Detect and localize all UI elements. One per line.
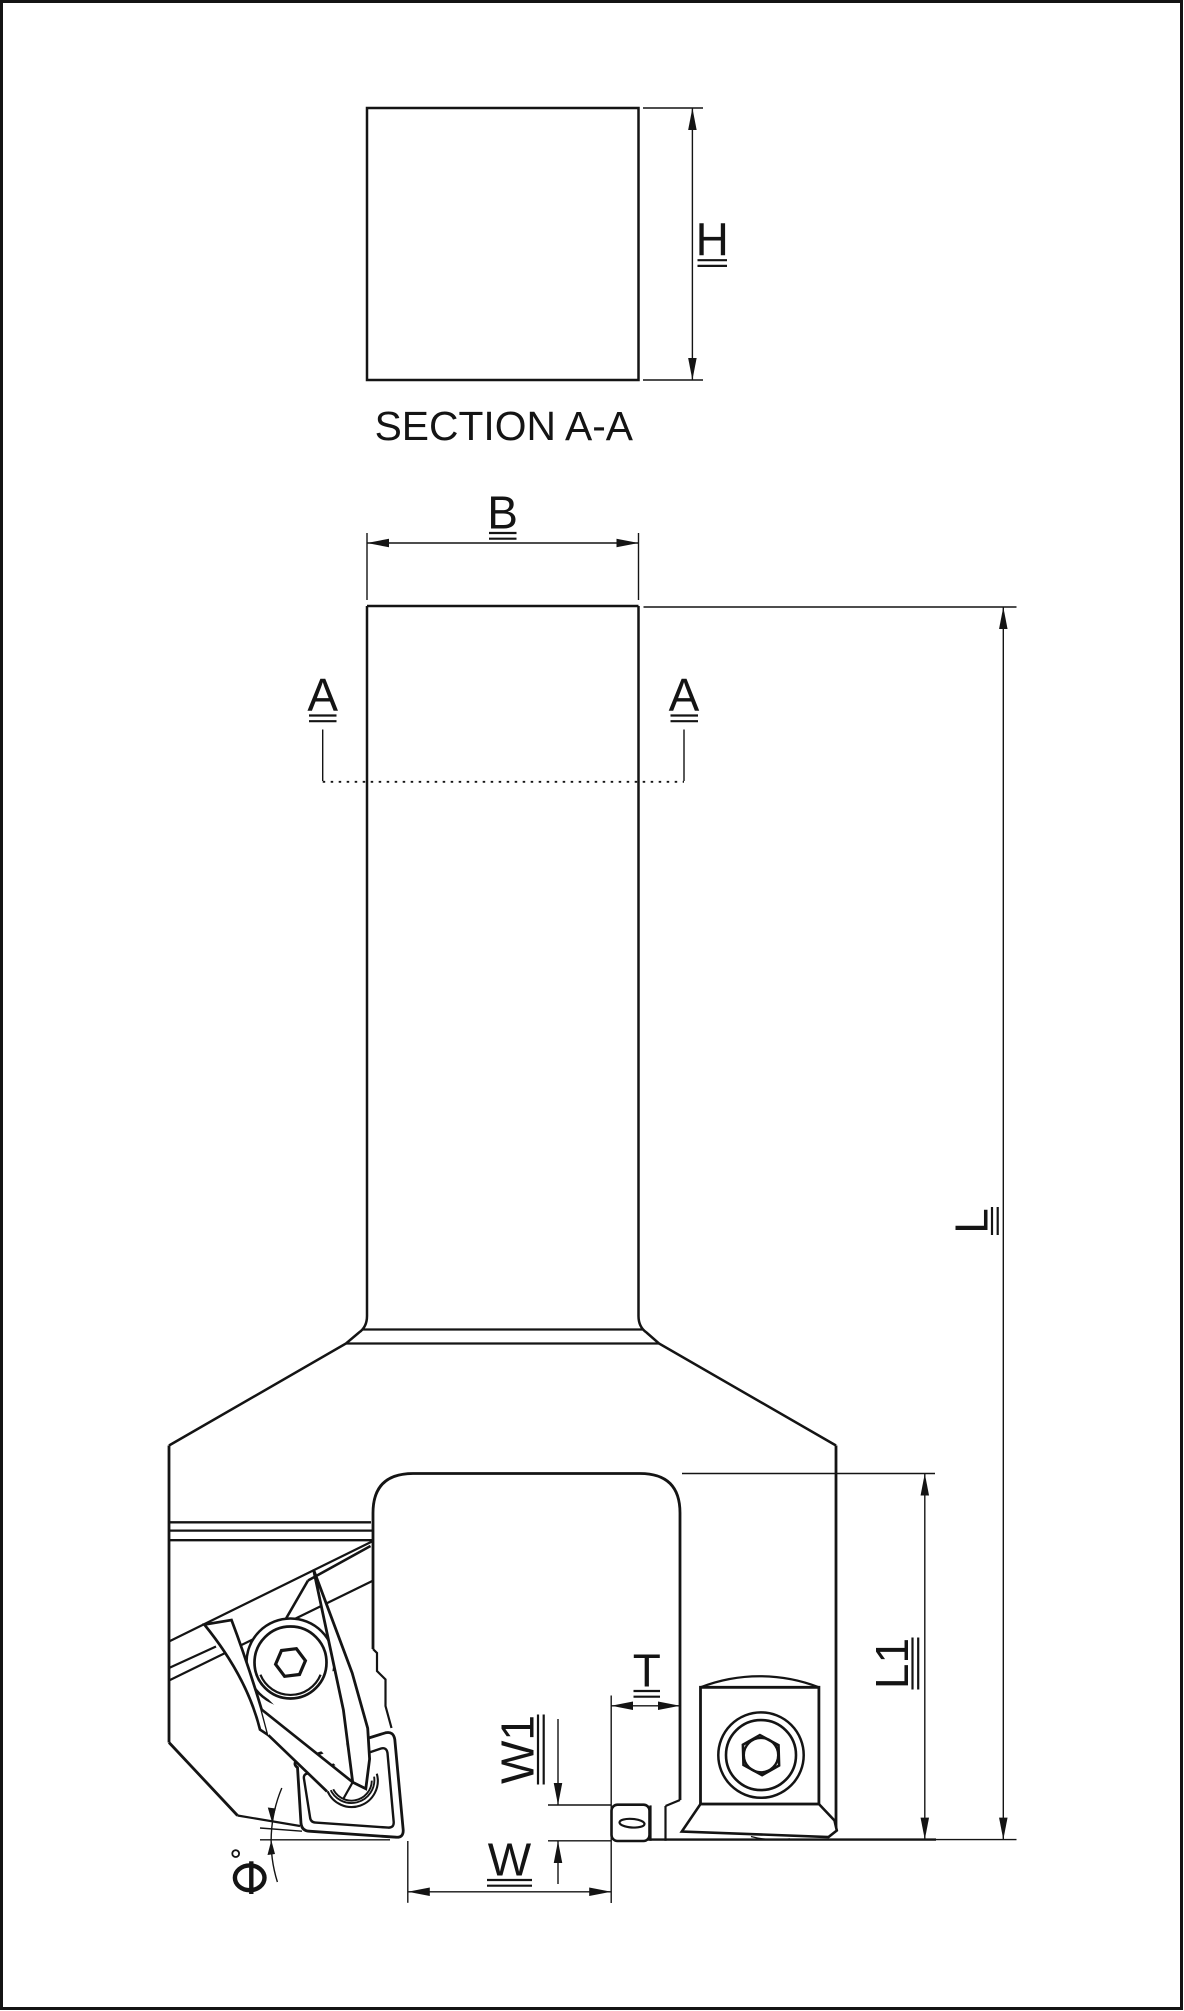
- svg-text:L: L: [946, 1208, 998, 1234]
- svg-text:L1: L1: [866, 1638, 918, 1689]
- svg-text:W: W: [488, 1834, 532, 1886]
- svg-text:B: B: [487, 487, 518, 539]
- svg-text:SECTION A-A: SECTION A-A: [375, 403, 634, 449]
- svg-text:A: A: [307, 669, 338, 721]
- svg-text:H: H: [696, 214, 729, 266]
- svg-text:W1: W1: [492, 1715, 544, 1784]
- svg-text:T: T: [633, 1645, 661, 1697]
- svg-text:A: A: [669, 669, 700, 721]
